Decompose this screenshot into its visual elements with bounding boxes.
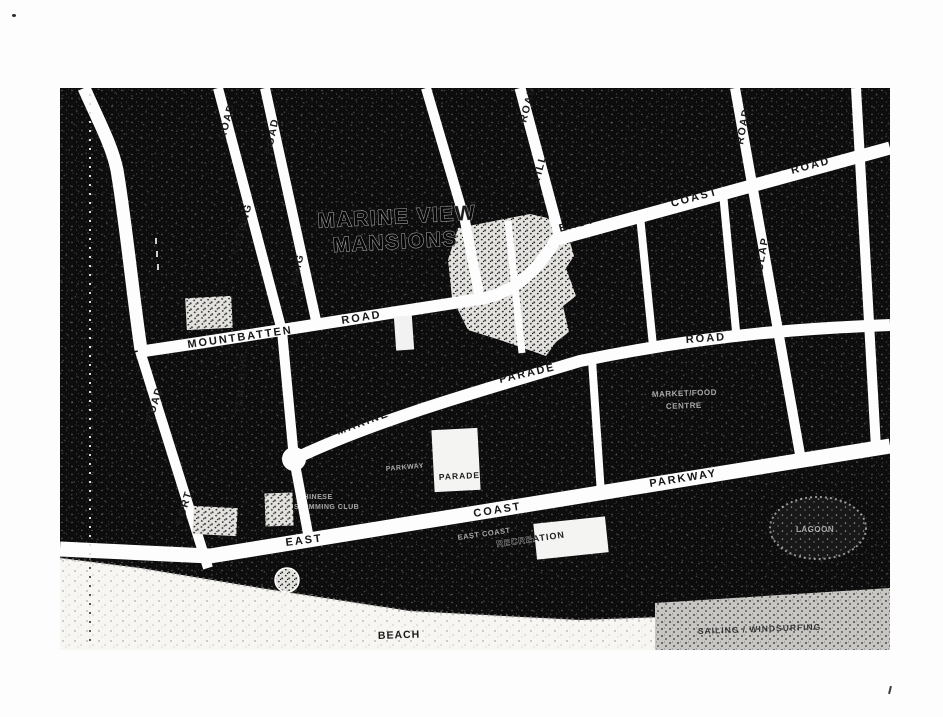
roundabout: [282, 447, 306, 471]
park-feature-circle: [275, 568, 299, 592]
stippled-block-west: [185, 296, 233, 330]
scan-artifact-tick: [888, 686, 892, 694]
map-frame: LAGOON MARINE VIEW MANSIONS ROAD KATONG …: [60, 88, 890, 650]
swimming-club-building-a: [192, 506, 237, 536]
scan-artifact-dot: [12, 14, 16, 17]
beach-label: BEACH: [378, 629, 421, 642]
scanned-map-page: LAGOON MARINE VIEW MANSIONS ROAD KATONG …: [0, 0, 943, 717]
parkway-parade-building: [431, 428, 480, 492]
swimming-club-building-b: [264, 493, 293, 527]
chinese-swimming-club-line1: CHINESE: [298, 494, 333, 501]
map-ground-noise: [60, 88, 890, 650]
scanned-map-svg: LAGOON MARINE VIEW MANSIONS ROAD KATONG …: [60, 88, 890, 650]
lagoon-label: LAGOON: [796, 525, 834, 534]
market-food-centre-line2: CENTRE: [666, 401, 702, 411]
building-bar: [394, 315, 414, 350]
chinese-swimming-club-line2: SWIMMING CLUB: [294, 504, 359, 511]
